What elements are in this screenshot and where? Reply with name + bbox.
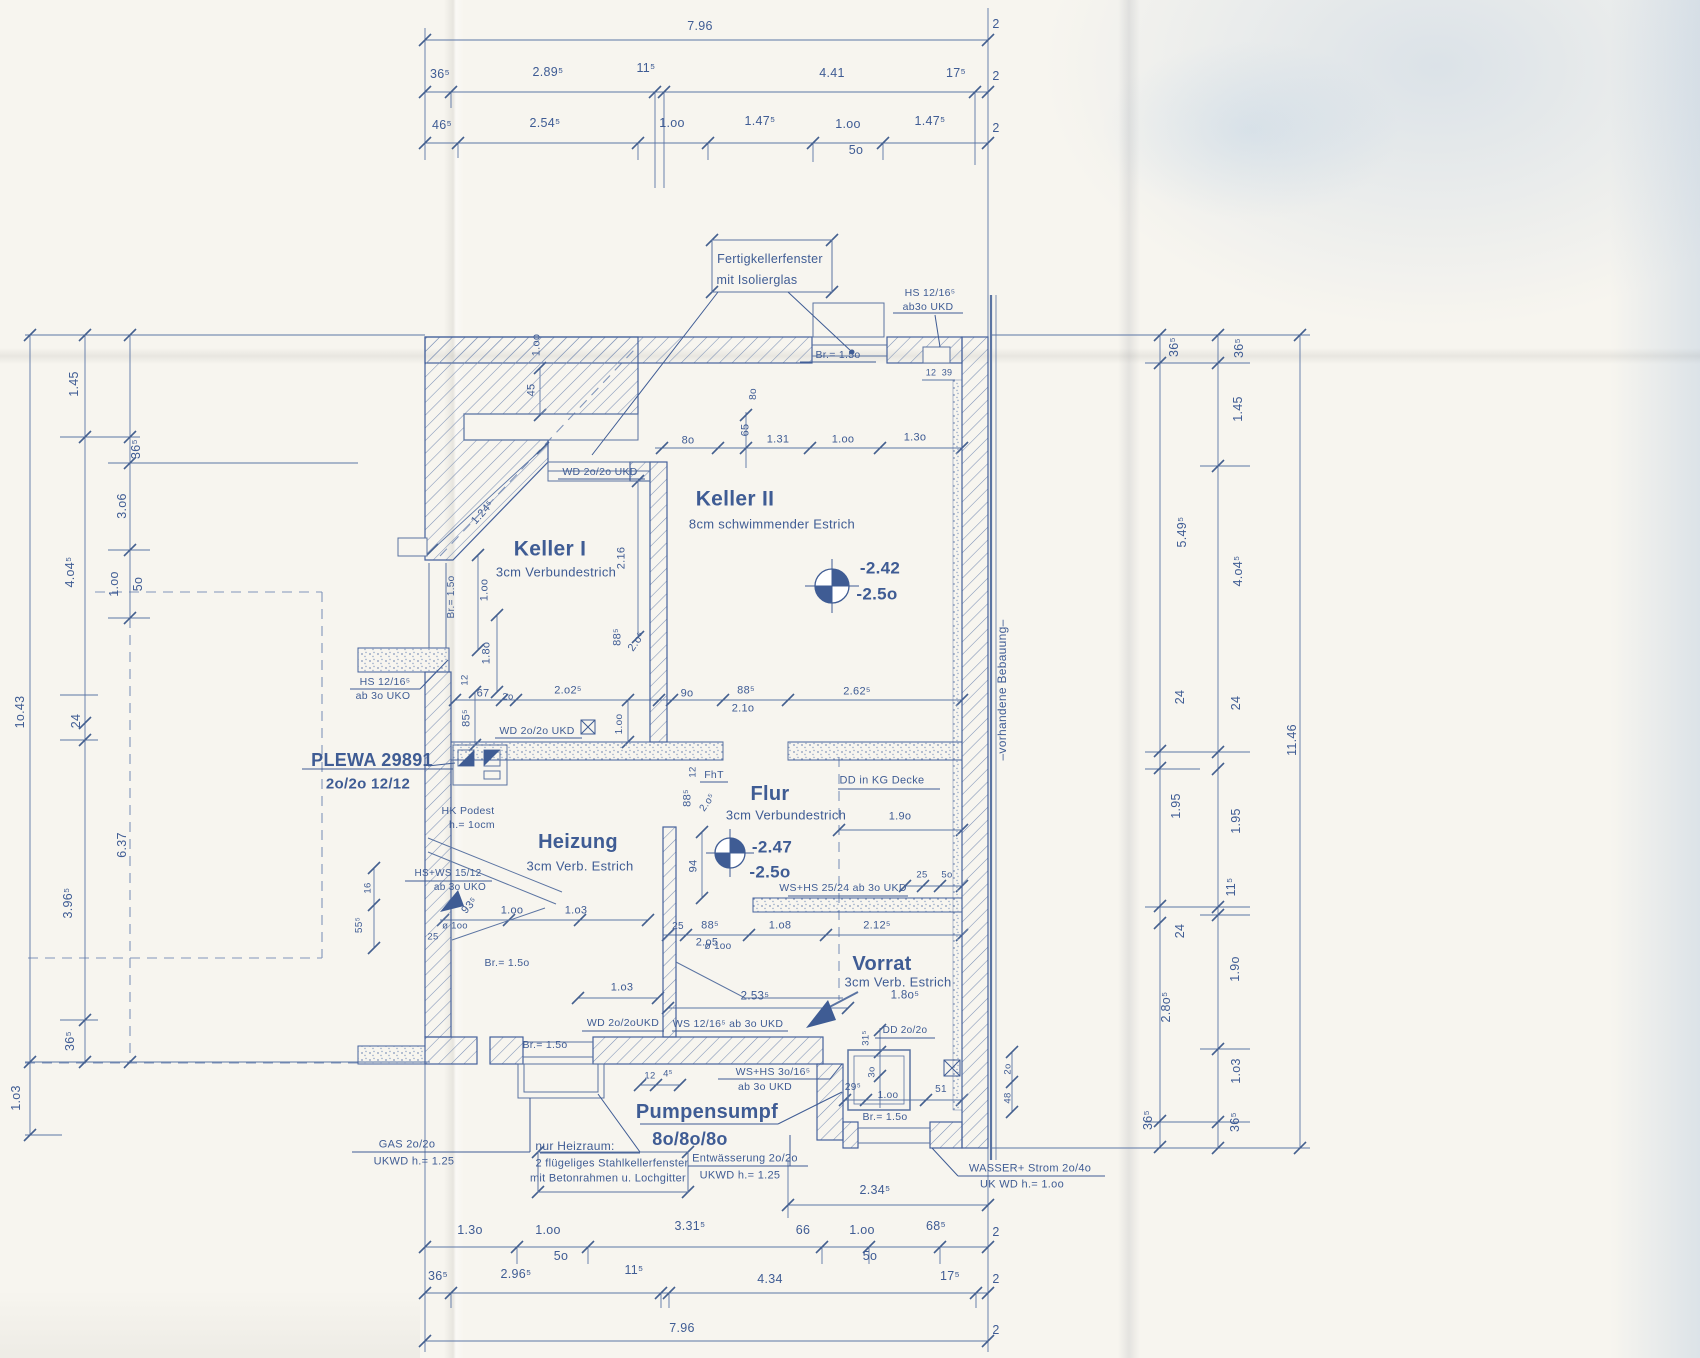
blueprint-page: 7.96236⁵2.89⁵11⁵4.4117⁵246⁵2.54⁵1.oo1.47… xyxy=(0,0,1700,1358)
dim-label-interior: 2.62⁵ xyxy=(843,687,870,698)
dim-label-interior: 8o xyxy=(682,436,695,447)
dim-label-bottom: 2 xyxy=(992,1324,999,1337)
dim-label-top: 36⁵ xyxy=(430,68,450,81)
annotation-label: UKWD h.= 1.25 xyxy=(700,1171,781,1182)
dim-label-top: 1.oo xyxy=(659,117,685,130)
annotation-label: Br.= 1.5o xyxy=(862,1112,907,1123)
room-label: 3cm Verb. Estrich xyxy=(527,860,634,873)
dim-label-left: 1.o3 xyxy=(10,1085,23,1111)
dim-label-top: 4.41 xyxy=(819,67,845,80)
dim-label-interior: 39 xyxy=(942,369,953,378)
room-label: Pumpensumpf xyxy=(636,1102,778,1122)
dim-label-interior: 12 xyxy=(926,369,937,378)
room-label: 3cm Verb. Estrich xyxy=(845,976,952,989)
dim-label-interior: 2.53⁵ xyxy=(741,991,770,1003)
annotation-label: WASSER+ Strom 2o/4o xyxy=(969,1164,1091,1175)
annotation-label: mit Isolierglas xyxy=(717,274,798,287)
dim-label-right: 1.95 xyxy=(1230,808,1243,834)
dim-label-interior: 1.8o⁵ xyxy=(891,990,920,1002)
dim-label-interior: 1.oo xyxy=(480,579,491,602)
dim-label-interior: 1.oo xyxy=(878,1091,899,1101)
room-label: Keller I xyxy=(514,539,586,560)
annotation-label: ab 3o UKD xyxy=(738,1082,792,1093)
dim-label-top: 2 xyxy=(992,122,999,135)
dim-label-interior: 93⁵ xyxy=(460,896,480,917)
annotation-label: Entwässerung 2o/2o xyxy=(692,1154,798,1165)
dim-label-left: 1.45 xyxy=(68,371,81,397)
annotation-label: WD 2o/2oUKD xyxy=(587,1018,659,1029)
dim-label-bottom: 17⁵ xyxy=(940,1270,960,1283)
dim-label-interior: 4⁵ xyxy=(663,1069,673,1079)
annotation-label: HK Podest xyxy=(442,806,495,817)
annotation-label: HS+WS 15/12 xyxy=(415,869,482,879)
dim-label-bottom: 3.31⁵ xyxy=(674,1220,705,1233)
annotation-label: WS 12/16⁵ ab 3o UKD xyxy=(673,1019,783,1030)
annotation-label: HS 12/16⁵ xyxy=(360,677,411,688)
room-label: 2o/2o 12/12 xyxy=(326,777,410,792)
dim-label-bottom: 2 xyxy=(992,1273,999,1286)
dim-label-right: 1.9o xyxy=(1229,956,1242,982)
dim-label-interior: 85⁵ xyxy=(462,709,473,727)
dim-label-right: 4.o4⁵ xyxy=(1232,555,1245,586)
dim-label-top: 11⁵ xyxy=(636,62,655,75)
dim-label-right: 24 xyxy=(1174,924,1187,939)
dim-label-interior: Br.= 1.5o xyxy=(447,575,457,618)
annotation-label: UK WD h.= 1.oo xyxy=(980,1180,1064,1191)
dim-label-right: 1.45 xyxy=(1232,396,1245,422)
dim-label-interior: 1.o3 xyxy=(611,983,634,994)
dim-label-top: 1.47⁵ xyxy=(914,115,945,128)
dim-label-left: 3.o6 xyxy=(116,493,129,519)
dim-label-interior: 1.oo xyxy=(532,334,543,357)
dim-label-bottom: 7.96 xyxy=(669,1322,695,1335)
dim-label-interior: 1.oo xyxy=(615,714,625,735)
dim-label-interior: 2.o⁵ xyxy=(698,792,717,814)
annotation-label: ab3o UKD xyxy=(903,302,954,313)
annotation-label: WD 2o/2o UKD xyxy=(562,467,637,478)
annotation-label: Br.= 1.5o xyxy=(522,1040,567,1051)
dim-label-left: 3.96⁵ xyxy=(62,887,75,918)
dim-label-interior: 1.o3 xyxy=(565,906,588,917)
dim-label-left: 24 xyxy=(70,714,83,729)
dim-label-left: 5o xyxy=(132,577,145,592)
annotation-label: DD 2o/2o xyxy=(883,1026,928,1036)
dim-label-right: 2.8o⁵ xyxy=(1160,991,1173,1022)
dim-label-interior: 88⁵ xyxy=(701,921,719,932)
dim-label-interior: 1.24⁵ xyxy=(470,499,497,527)
room-label: Flur xyxy=(751,784,790,804)
dim-label-right: 36⁵ xyxy=(1142,1110,1155,1130)
dim-label-bottom: 1.oo xyxy=(535,1224,561,1237)
annotation-label: ab 3o UKO xyxy=(434,883,486,893)
dim-label-interior: 2o xyxy=(1003,1063,1013,1074)
dim-label-interior: 88⁵ xyxy=(613,628,624,646)
dim-label-interior: 2.12⁵ xyxy=(863,921,890,932)
dim-label-interior: 88⁵ xyxy=(737,686,755,697)
dim-label-right: 1.95 xyxy=(1170,793,1183,819)
annotation-label: FhT xyxy=(704,770,724,781)
dim-label-top: 2.89⁵ xyxy=(532,66,563,79)
room-label: Keller II xyxy=(696,489,775,510)
dim-label-right: 11.46 xyxy=(1286,724,1299,756)
dim-label-interior: 12 xyxy=(644,1071,655,1081)
dim-label-right: 36⁵ xyxy=(1168,337,1181,357)
level-value: -2.5o xyxy=(856,586,897,603)
dim-label-interior: 94 xyxy=(689,860,700,873)
dim-label-interior: 8o xyxy=(749,388,759,400)
dim-label-interior: 2.1o xyxy=(732,704,755,715)
room-label: 8o/8o/8o xyxy=(652,1130,727,1148)
annotation-label: nur Heizraum: xyxy=(535,1140,614,1152)
dim-label-interior: 1.31 xyxy=(767,435,790,446)
dim-label-interior: 88⁵ xyxy=(683,789,694,807)
dim-label-top: 2 xyxy=(992,70,999,83)
dim-label-top: 46⁵ xyxy=(432,119,452,132)
annotation-label: WS+HS 25/24 ab 3o UKD xyxy=(779,883,906,894)
dim-label-top: 7.96 xyxy=(687,20,713,33)
annotation-label: Fertigkellerfenster xyxy=(717,253,823,266)
dim-label-bottom: 66 xyxy=(796,1224,811,1237)
level-value: -2.5o xyxy=(749,864,790,881)
dim-label-left: 36⁵ xyxy=(64,1031,77,1051)
dim-label-interior: 48 xyxy=(1003,1092,1013,1103)
annotation-label: h.= 1ocm xyxy=(449,820,495,831)
dim-label-interior: ø 1oo xyxy=(704,942,731,952)
dim-label-interior: 1.3o xyxy=(904,433,927,444)
dim-label-bottom: 1.oo xyxy=(849,1224,875,1237)
dim-label-bottom: 2 xyxy=(992,1226,999,1239)
dim-label-bottom: 11⁵ xyxy=(624,1264,643,1277)
dim-label-interior: 25 xyxy=(672,922,684,932)
dim-label-interior: 12 xyxy=(688,766,698,777)
dim-label-interior: 67 xyxy=(477,689,490,700)
dim-label-left: 36⁵ xyxy=(130,439,143,459)
dim-label-bottom: 5o xyxy=(863,1250,878,1263)
dim-label-interior: 45 xyxy=(527,384,538,397)
dim-label-interior: 65 xyxy=(741,424,752,437)
dim-label-interior: 9o xyxy=(681,689,694,700)
dim-label-top: 5o xyxy=(849,144,864,157)
dim-label-top: 2 xyxy=(992,18,999,31)
dim-label-top: 1.47⁵ xyxy=(744,115,775,128)
room-label: 8cm schwimmender Estrich xyxy=(689,518,855,531)
dim-label-interior: 25 xyxy=(916,870,927,880)
dim-label-left: 1.oo xyxy=(108,571,121,597)
dim-label-interior: 2.o⁵ xyxy=(626,630,647,654)
annotation-label: GAS 2o/2o xyxy=(379,1140,436,1151)
dim-label-interior: 5o xyxy=(941,870,952,880)
annotation-label: Br.= 1.5o xyxy=(815,350,860,361)
dim-label-interior: 1.oo xyxy=(832,435,855,446)
dim-label-interior: 16 xyxy=(363,882,373,893)
level-value: -2.47 xyxy=(752,839,792,856)
dim-label-right: 1.o3 xyxy=(1230,1058,1243,1084)
dim-label-interior: 2o xyxy=(502,692,513,702)
dim-label-top: 2.54⁵ xyxy=(529,117,560,130)
dim-label-right: 24 xyxy=(1230,696,1243,711)
dim-label-interior: 1.oo xyxy=(501,906,524,917)
dim-label-bottom: 68⁵ xyxy=(926,1220,946,1233)
dim-label-interior: ø 1oo xyxy=(442,921,468,931)
dim-label-bottom: 4.34 xyxy=(757,1273,783,1286)
level-value: -2.42 xyxy=(860,560,900,577)
room-label: Heizung xyxy=(538,832,618,852)
dim-label-interior: 29⁵ xyxy=(845,1083,861,1093)
dim-label-right: 36⁵ xyxy=(1229,1112,1242,1132)
dim-label-left: 1o.43 xyxy=(14,696,27,729)
dim-label-interior: 25 xyxy=(427,932,438,942)
dim-label-interior: 2.16 xyxy=(617,547,628,570)
annotation-label: Br.= 1.5o xyxy=(484,958,529,969)
room-label: 3cm Verbundestrich xyxy=(496,566,616,579)
dim-label-interior: 2.o2⁵ xyxy=(554,686,581,697)
dim-label-bottom: 5o xyxy=(554,1250,569,1263)
dim-label-left: 4.o4⁵ xyxy=(64,556,77,587)
annotation-label: ab 3o UKO xyxy=(356,691,411,702)
dim-label-top: 17⁵ xyxy=(946,67,966,80)
dim-label-bottom: 1.3o xyxy=(457,1224,483,1237)
dim-label-interior: 1.o8 xyxy=(769,921,792,932)
annotation-label: UKWD h.= 1.25 xyxy=(374,1157,455,1168)
dim-label-interior: 55⁵ xyxy=(355,917,365,933)
annotation-label: WS+HS 3o/16⁵ xyxy=(736,1067,811,1078)
room-label: 3cm Verbundestrich xyxy=(726,809,846,822)
dim-label-interior: 12 xyxy=(460,674,470,685)
annotation-label: 2 flügeliges Stahlkellerfenster xyxy=(536,1159,689,1170)
dim-label-bottom: 2.96⁵ xyxy=(500,1268,531,1281)
dim-label-bottom: 36⁵ xyxy=(428,1270,448,1283)
dim-label-left: 6.37 xyxy=(116,832,129,858)
dim-label-right: 36⁵ xyxy=(1233,338,1246,358)
dim-label-right: 24 xyxy=(1174,690,1187,705)
annotation-label: HS 12/16⁵ xyxy=(905,288,956,299)
dim-label-interior: 1.8o xyxy=(482,642,493,665)
room-label: PLEWA 29891 xyxy=(311,751,433,769)
dim-label-interior: 51 xyxy=(935,1085,947,1095)
dim-label-top: 1.oo xyxy=(835,118,861,131)
dim-label-right: 5.49⁵ xyxy=(1176,516,1189,547)
annotation-label: WD 2o/2o UKD xyxy=(499,726,574,737)
dim-label-right: 11⁵ xyxy=(1225,877,1238,896)
dim-label-bottom: 2.34⁵ xyxy=(859,1184,890,1197)
dim-label-interior: 3o xyxy=(867,1066,877,1077)
dim-label-interior: 1.9o xyxy=(889,812,912,823)
annotation-label: DD in KG Decke xyxy=(840,776,925,787)
dim-label-interior: 31⁵ xyxy=(861,1030,871,1045)
label-layer: 7.96236⁵2.89⁵11⁵4.4117⁵246⁵2.54⁵1.oo1.47… xyxy=(0,0,1700,1358)
annotation-label: –vorhandene Bebauung– xyxy=(996,619,1008,760)
room-label: Vorrat xyxy=(852,954,911,974)
annotation-label: mit Betonrahmen u. Lochgitter xyxy=(530,1174,686,1185)
